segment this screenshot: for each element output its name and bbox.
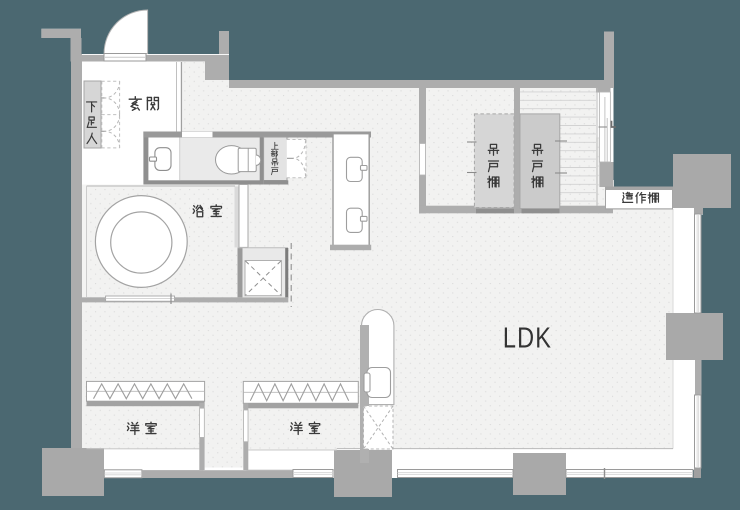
- svg-text:LDK: LDK: [503, 321, 552, 354]
